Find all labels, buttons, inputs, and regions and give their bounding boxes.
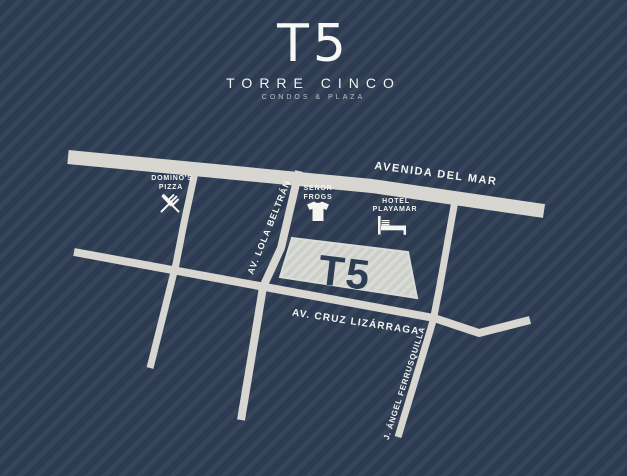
landmark-senor-frogs: SEÑOR FROGS <box>304 183 333 221</box>
page: { "logo": { "mark": "T5", "name": "TORRE… <box>0 0 627 476</box>
logo-tagline: CONDOS & PLAZA <box>0 94 627 102</box>
bed-icon <box>378 216 406 235</box>
landmark-hotel-playamar: HOTEL PLAYAMAR <box>373 198 418 235</box>
hotel-playamar-label-line2: PLAYAMAR <box>373 206 418 213</box>
logo: T5 TORRE CINCO CONDOS & PLAZA <box>0 18 627 102</box>
tshirt-icon <box>307 202 329 222</box>
senor-frogs-label-line1: SEÑOR <box>304 183 333 192</box>
senor-frogs-label-line2: FROGS <box>304 194 333 201</box>
dominos-label-line2: PIZZA <box>159 184 183 191</box>
crossed-cutlery-icon <box>159 194 180 214</box>
dominos-label-line1: DOMINO'S <box>151 175 193 182</box>
t5-building-label: T5 <box>316 246 374 299</box>
logo-name: TORRE CINCO <box>0 76 627 90</box>
hotel-playamar-label-line1: HOTEL <box>382 198 410 205</box>
logo-mark: T5 <box>0 18 627 70</box>
